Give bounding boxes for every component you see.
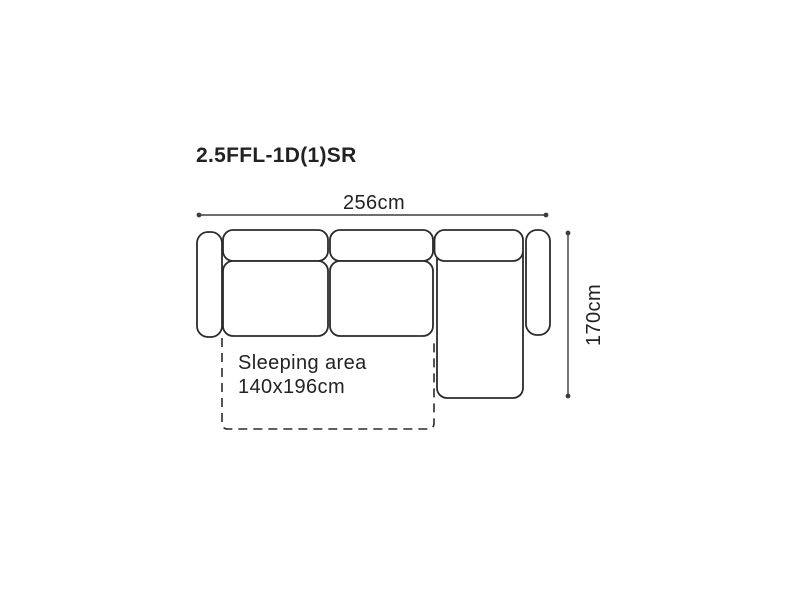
depth-dimension-start-dot xyxy=(566,231,571,236)
sleeping-area-size: 140x196cm xyxy=(238,376,345,398)
depth-dimension-label: 170cm xyxy=(583,284,605,346)
model-code: 2.5FFL-1D(1)SR xyxy=(196,144,357,167)
depth-dimension-end-dot xyxy=(566,394,571,399)
width-dimension-start-dot xyxy=(197,213,202,218)
product-dimension-diagram: 2.5FFL-1D(1)SR 256cm 170cm Sleeping area… xyxy=(0,0,800,600)
width-dimension-end-dot xyxy=(544,213,549,218)
backrest-cushion-1 xyxy=(223,230,328,261)
backrest-cushion-3 xyxy=(435,230,524,261)
chaise-lounge xyxy=(437,244,523,398)
width-dimension-label: 256cm xyxy=(343,192,405,214)
sleeping-area-label: Sleeping area xyxy=(238,352,367,374)
left-armrest xyxy=(197,232,222,337)
seat-cushion-1 xyxy=(223,261,328,336)
right-armrest xyxy=(526,230,550,335)
depth-dimension xyxy=(566,231,571,399)
seat-cushion-2 xyxy=(330,261,433,336)
backrest-cushion-2 xyxy=(330,230,433,261)
sleeping-area: Sleeping area 140x196cm xyxy=(222,338,434,429)
diagram-canvas: 2.5FFL-1D(1)SR 256cm 170cm Sleeping area… xyxy=(0,0,800,600)
